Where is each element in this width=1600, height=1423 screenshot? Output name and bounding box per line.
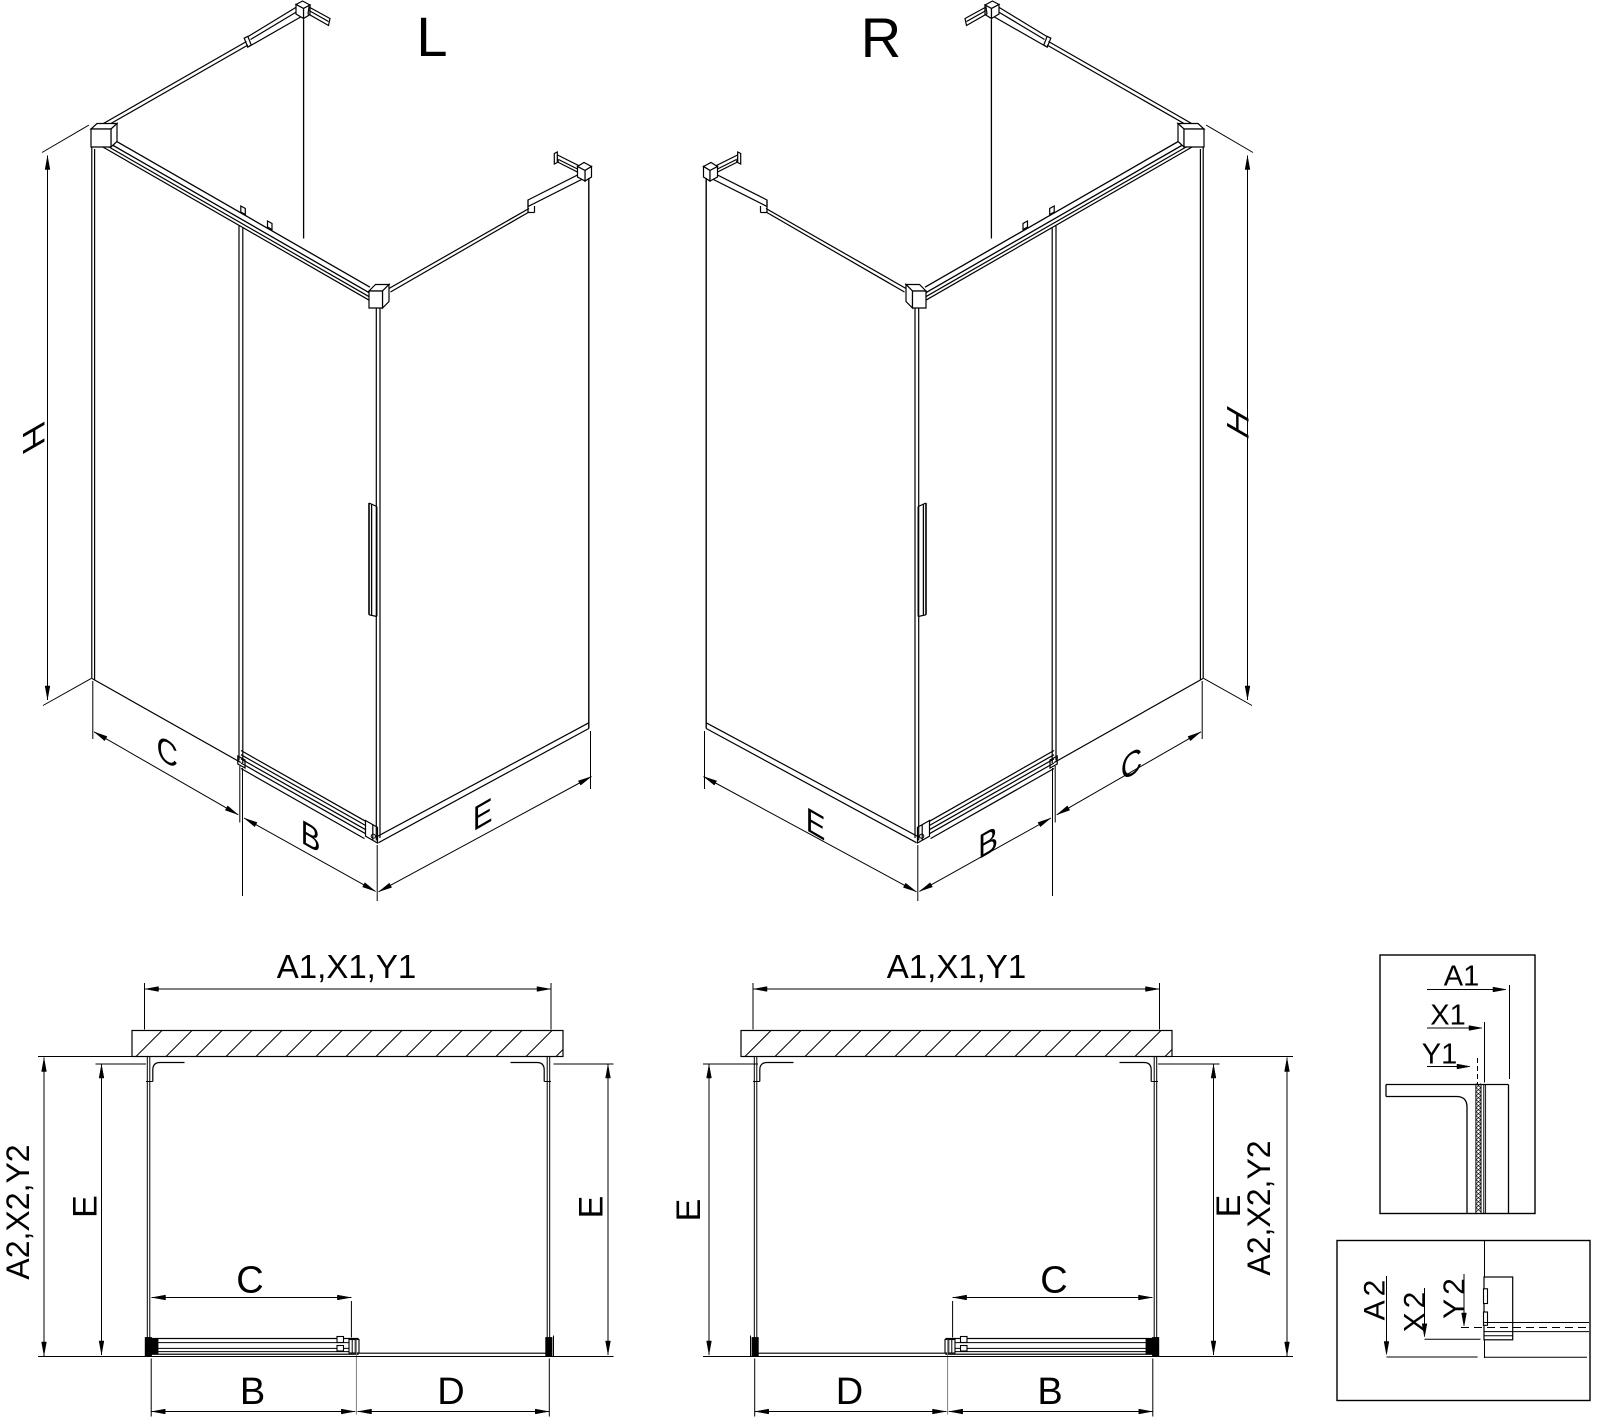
svg-text:C: C bbox=[1040, 1260, 1067, 1302]
svg-text:E: E bbox=[670, 1199, 708, 1222]
svg-text:D: D bbox=[437, 1371, 464, 1413]
svg-text:A1,X1,Y1: A1,X1,Y1 bbox=[887, 948, 1026, 985]
svg-text:Y1: Y1 bbox=[1422, 1039, 1457, 1071]
svg-text:Y2: Y2 bbox=[1438, 1274, 1471, 1319]
svg-text:B: B bbox=[1037, 1371, 1062, 1413]
svg-text:X1: X1 bbox=[1430, 1000, 1465, 1032]
svg-text:R: R bbox=[861, 6, 901, 69]
svg-text:A2,X2,Y2: A2,X2,Y2 bbox=[1241, 1140, 1277, 1275]
svg-text:C: C bbox=[236, 1260, 263, 1302]
svg-text:B: B bbox=[240, 1371, 265, 1413]
svg-text:E: E bbox=[573, 1196, 611, 1219]
svg-text:A1,X1,Y1: A1,X1,Y1 bbox=[277, 948, 416, 985]
svg-text:L: L bbox=[416, 5, 447, 68]
svg-text:D: D bbox=[836, 1371, 863, 1413]
svg-text:A1: A1 bbox=[1444, 961, 1479, 993]
svg-text:E: E bbox=[67, 1195, 105, 1218]
svg-text:A2,X2,Y2: A2,X2,Y2 bbox=[0, 1144, 36, 1279]
